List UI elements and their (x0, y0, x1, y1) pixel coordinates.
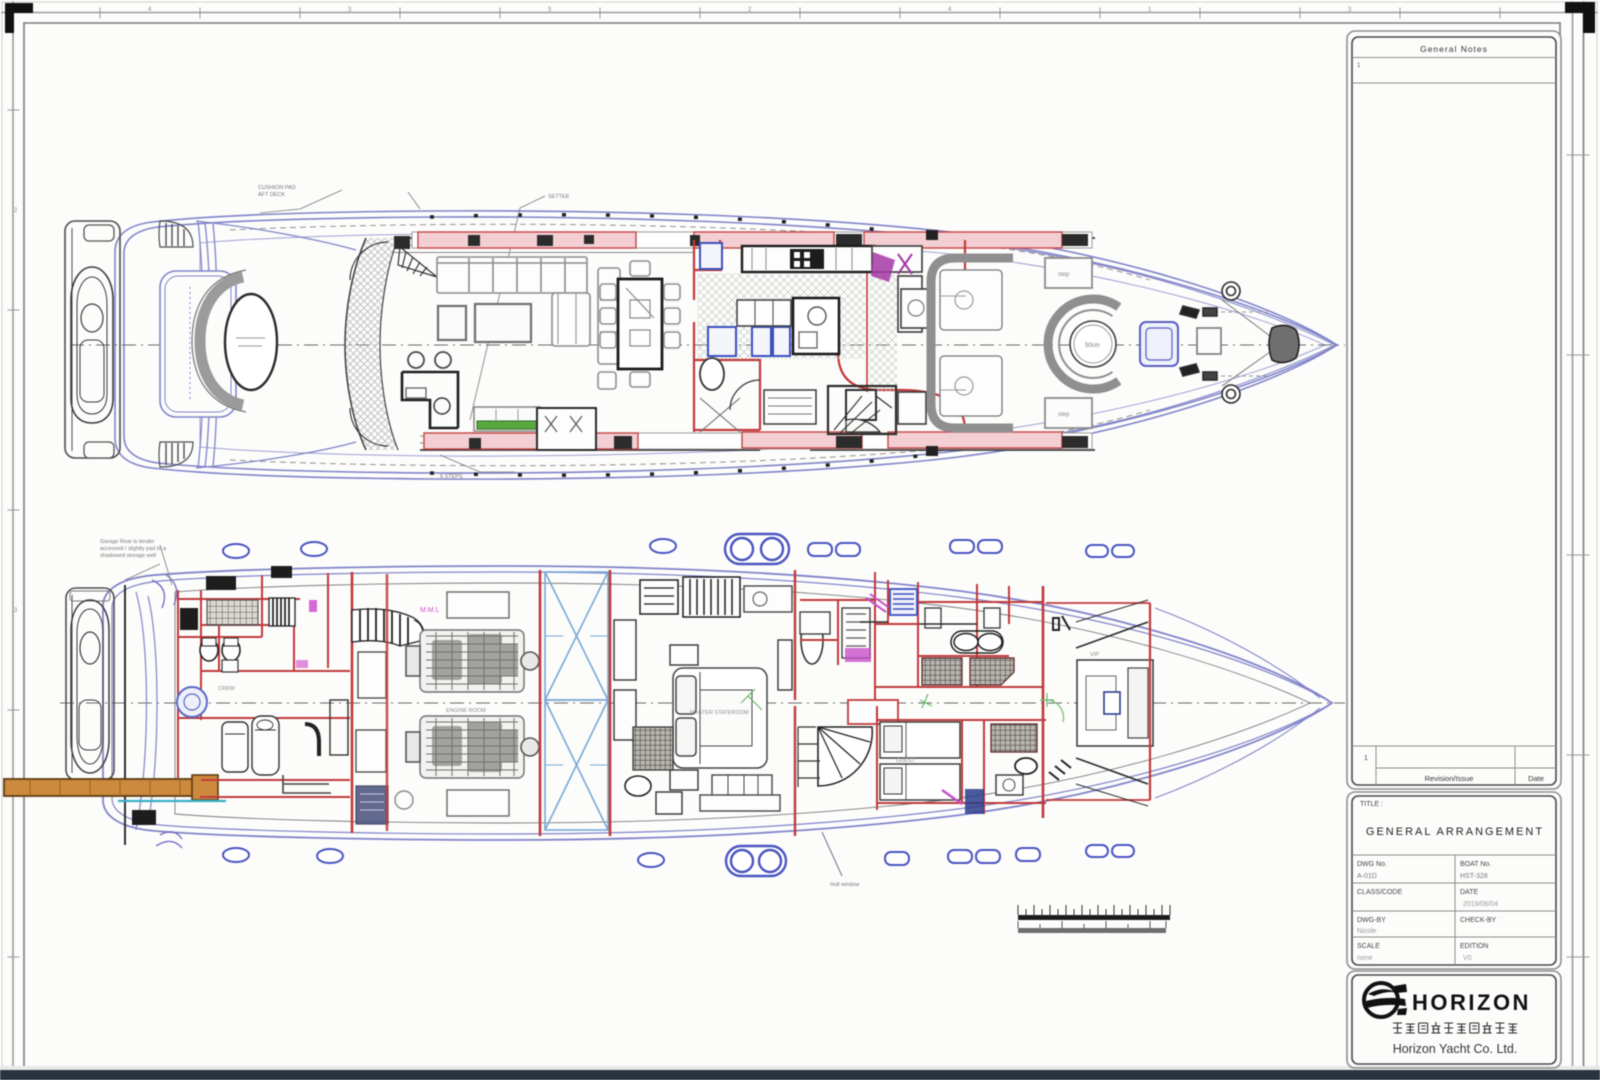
svg-text:DATE: DATE (1460, 889, 1478, 896)
svg-text:Horizon Yacht Co. Ltd.: Horizon Yacht Co. Ltd. (1393, 1042, 1518, 1056)
svg-text:General Notes: General Notes (1420, 44, 1488, 54)
svg-text:none: none (1357, 955, 1373, 962)
svg-text:SCALE: SCALE (1357, 943, 1380, 950)
svg-text:V0: V0 (1463, 955, 1472, 962)
svg-text:Revision/Issue: Revision/Issue (1425, 774, 1474, 783)
svg-text:CUSHION PAD: CUSHION PAD (258, 185, 296, 191)
svg-text:GUEST: GUEST (896, 758, 916, 764)
svg-text:Date: Date (1528, 774, 1544, 783)
svg-text:CLASS/CODE: CLASS/CODE (1357, 889, 1402, 896)
svg-text:M.M.L: M.M.L (420, 607, 440, 614)
svg-text:CREW: CREW (218, 686, 236, 692)
svg-text:ENGINE ROOM: ENGINE ROOM (446, 708, 486, 714)
svg-text:A-01D: A-01D (1357, 873, 1377, 880)
svg-text:step: step (1058, 412, 1070, 418)
svg-text:EDITION: EDITION (1460, 943, 1488, 950)
svg-text:HST-328: HST-328 (1460, 873, 1488, 880)
svg-text:2019/06/04: 2019/06/04 (1463, 901, 1498, 908)
svg-text:50cm: 50cm (1085, 343, 1100, 349)
svg-text:Hull window: Hull window (830, 882, 859, 888)
svg-text:HORIZON: HORIZON (1412, 990, 1531, 1015)
svg-text:accessed / slightly pad to a: accessed / slightly pad to a (100, 546, 167, 552)
svg-text:BOAT No.: BOAT No. (1460, 861, 1491, 868)
svg-text:VIP: VIP (1090, 652, 1099, 658)
svg-text:DWG-BY: DWG-BY (1357, 917, 1386, 924)
svg-text:MASTER STATEROOM: MASTER STATEROOM (690, 710, 749, 716)
svg-text:AFT DECK: AFT DECK (258, 192, 285, 198)
svg-text:TITLE :: TITLE : (1360, 801, 1383, 808)
svg-text:GENERAL ARRANGEMENT: GENERAL ARRANGEMENT (1366, 826, 1544, 838)
svg-text:shadowed storage well: shadowed storage well (100, 553, 156, 559)
svg-text:step: step (1058, 272, 1070, 278)
svg-text:SETTEE: SETTEE (548, 194, 570, 200)
svg-text:6 STEPS: 6 STEPS (440, 474, 463, 480)
svg-text:Garage Rear is tender: Garage Rear is tender (100, 539, 155, 545)
svg-text:DWG No.: DWG No. (1357, 861, 1387, 868)
svg-text:Nicole: Nicole (1357, 928, 1377, 935)
svg-text:CHECK-BY: CHECK-BY (1460, 917, 1497, 924)
svg-text:1: 1 (1364, 755, 1368, 762)
